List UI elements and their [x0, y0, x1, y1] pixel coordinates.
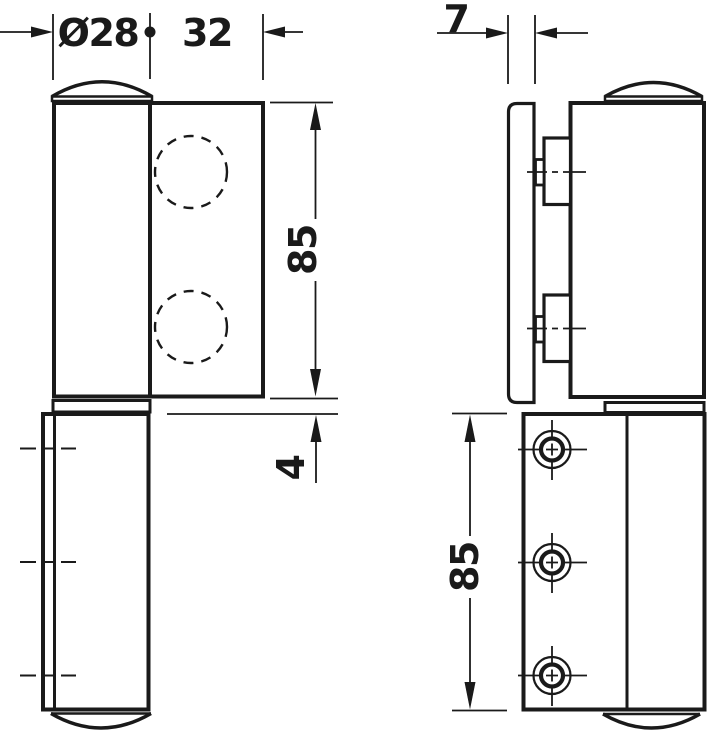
dim-joint-gap: 4	[167, 414, 338, 483]
dim-label-joint-gap: 4	[269, 455, 313, 480]
arrowhead-up-icon	[465, 415, 476, 443]
arrowhead-up-icon	[311, 415, 322, 442]
dim-upper-leaf-height: 85	[270, 103, 338, 399]
side-pin-bottom-cap-arc	[603, 714, 700, 728]
side-knuckle-joint-band	[605, 403, 704, 413]
dim-label-lower-leaf-height: 85	[443, 542, 487, 592]
side-pin-top-cap-arc	[605, 83, 702, 97]
pin-top-cap-arc	[52, 82, 152, 97]
pin-bottom-cap-arc	[51, 714, 151, 729]
upper-clamp-body	[571, 103, 705, 397]
knuckle-joint-band	[53, 401, 150, 413]
upper-leaf-body	[54, 103, 263, 397]
side-view	[509, 83, 705, 729]
arrowhead-left-icon	[263, 27, 285, 38]
dim-label-leaf-width: 32	[182, 11, 232, 55]
dim-knuckle-diameter-and-leaf-width: Ø28 32	[0, 11, 303, 80]
arrowhead-right-icon	[31, 27, 53, 38]
dimension-dot-marker	[145, 27, 156, 38]
arrowhead-down-icon	[310, 369, 321, 397]
hinge-technical-drawing: Ø28 32 7 85 4	[0, 0, 707, 730]
side-pin-top-cap-band	[605, 97, 702, 102]
glass-pane	[509, 104, 535, 403]
arrowhead-left-icon	[535, 28, 557, 39]
front-view	[20, 82, 263, 728]
dim-lower-leaf-height: 85	[443, 414, 507, 711]
dim-label-knuckle-diameter: Ø28	[58, 11, 139, 55]
pin-top-cap-band	[52, 97, 152, 102]
drawing-canvas: Ø28 32 7 85 4	[0, 0, 707, 730]
lower-leaf-body	[43, 414, 149, 710]
dim-label-upper-leaf-height: 85	[281, 225, 325, 275]
arrowhead-up-icon	[310, 103, 321, 130]
dim-glass-thickness: 7	[437, 0, 588, 84]
arrowhead-down-icon	[465, 682, 476, 710]
dim-label-glass-thickness: 7	[444, 0, 469, 41]
arrowhead-right-icon	[486, 28, 508, 39]
